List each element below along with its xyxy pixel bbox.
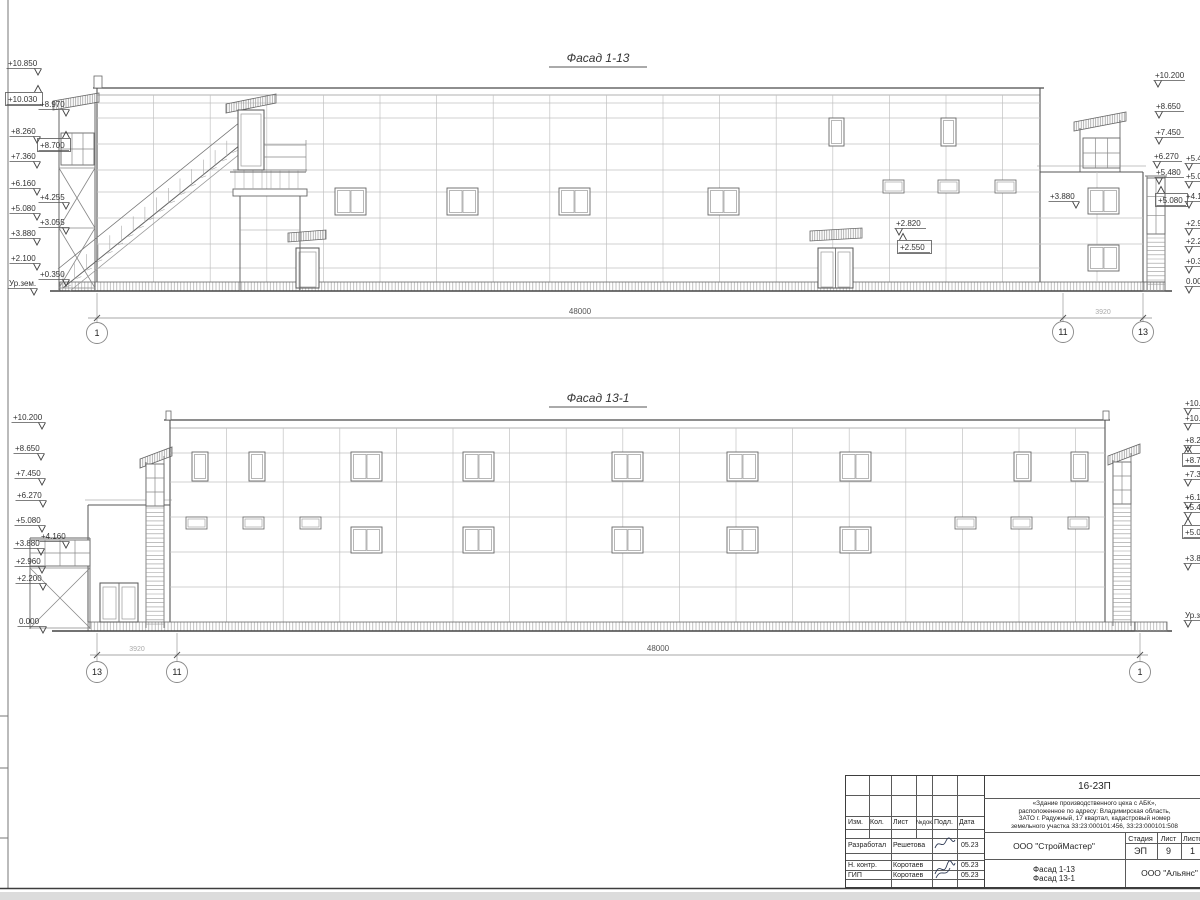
- elevation-mark-label: +8.700: [1185, 456, 1200, 465]
- elevation-mark-label: +5.480: [1185, 503, 1200, 512]
- row-role: Разработал: [848, 842, 886, 849]
- roof-post: [1103, 411, 1109, 420]
- window: [727, 527, 758, 553]
- axis-number: 13: [92, 667, 102, 677]
- axis-number: 11: [1058, 327, 1067, 337]
- listov-label: Листов: [1183, 834, 1200, 843]
- elevation-mark-label: +2.100: [11, 254, 36, 263]
- roof-post: [166, 411, 171, 420]
- signature: [933, 836, 956, 852]
- project-line: земельного участка 33:23:000101:456, 33:…: [984, 823, 1200, 831]
- window: [708, 188, 739, 215]
- project-line: ЗАТО г. Радужный, 17 квартал, кадастровы…: [984, 815, 1200, 823]
- drawing-canvas: Фасад 1-1348000392011113+10.850+10.030+8…: [0, 0, 1200, 900]
- window: [559, 188, 590, 215]
- sheet-title-2: Фасад 13-1: [984, 874, 1125, 883]
- elevation-mark-label: +8.700: [40, 141, 65, 150]
- col-list-label: Лист: [893, 819, 908, 826]
- elevation-mark-label: +7.450: [16, 469, 41, 478]
- elevation-mark-label: +0.350: [1186, 257, 1200, 266]
- elevation-mark-label: +6.270: [17, 491, 42, 500]
- elevation-mark-arrow: [1073, 202, 1080, 209]
- stage-value: ЭП: [1125, 846, 1157, 856]
- elevation-mark-label: +3.880: [15, 539, 40, 548]
- plinth: [88, 622, 1135, 631]
- elevation-mark-arrow: [900, 234, 907, 241]
- window: [840, 527, 871, 553]
- row-name: Решетова: [893, 842, 925, 849]
- elevation-mark-arrow: [1186, 287, 1193, 294]
- axis-number: 13: [1138, 327, 1148, 337]
- elevation-mark-label: +2.200: [17, 574, 42, 583]
- col-izm-label: Изм.: [848, 819, 863, 826]
- elevation-mark-label: 0.000: [19, 617, 40, 626]
- elevation-mark-label: +3.055: [40, 218, 65, 227]
- window: [463, 452, 494, 481]
- elevation-mark-label: +3.880: [11, 229, 36, 238]
- elevation-mark-arrow: [35, 69, 42, 76]
- elevation-mark-arrow: [63, 203, 70, 210]
- window: [351, 527, 382, 553]
- canopy: [810, 228, 862, 241]
- elevation-mark-label: +5.080: [1185, 528, 1200, 537]
- elevation-mark-arrow: [1155, 81, 1162, 88]
- drawing-sheet: { "titles": { "top": "Фасад 1-13", "bott…: [0, 0, 1200, 900]
- row-name: Коротаев: [893, 872, 923, 879]
- elevation-mark-arrow: [1186, 202, 1193, 209]
- facade-top-title: Фасад 1-13: [567, 51, 630, 65]
- elevation-mark-arrow: [35, 86, 42, 93]
- facade-1-13-drawing: Фасад 1-1348000392011113+10.850+10.030+8…: [6, 51, 1200, 344]
- window: [1088, 245, 1119, 271]
- elevation-mark-arrow: [39, 567, 46, 574]
- elevation-mark-arrow: [1185, 564, 1192, 571]
- dimension-label: 48000: [569, 307, 592, 316]
- elevation-mark-label: +10.850: [1185, 399, 1200, 408]
- elevation-mark-arrow: [34, 239, 41, 246]
- doc-number: 16-23П: [984, 781, 1200, 792]
- elevation-mark-label: +3.880: [1050, 192, 1075, 201]
- designer-org: ООО "СтройМастер": [984, 841, 1125, 851]
- elevation-mark-label: +5.480: [1156, 168, 1181, 177]
- window: [447, 188, 478, 215]
- facade-bottom-title: Фасад 13-1: [567, 391, 630, 405]
- elevation-mark-label: +4.255: [40, 193, 65, 202]
- window: [612, 452, 643, 481]
- listov-value: 1: [1190, 846, 1195, 856]
- elevation-mark-arrow: [1186, 182, 1193, 189]
- dimension-label: 48000: [647, 644, 670, 653]
- elevation-mark-label: +6.270: [1154, 152, 1179, 161]
- row-date: 05.23: [961, 842, 979, 849]
- plinth: [1135, 622, 1167, 631]
- project-description: «Здание производственного цеха с АБК», р…: [984, 800, 1200, 830]
- elevation-mark-label: +10.200: [1155, 71, 1185, 80]
- window: [612, 527, 643, 553]
- window: [335, 188, 366, 215]
- elevation-mark-arrow: [40, 584, 47, 591]
- elevation-mark-label: +10.850: [8, 59, 38, 68]
- elevation-mark-arrow: [38, 454, 45, 461]
- row-role: ГИП: [848, 872, 862, 879]
- elevation-mark-label: +2.820: [896, 219, 921, 228]
- sheet-title-1: Фасад 1-13: [984, 865, 1125, 874]
- elevation-mark-arrow: [1186, 247, 1193, 254]
- elevation-mark-arrow: [40, 627, 47, 634]
- col-data-label: Дата: [959, 819, 975, 826]
- elevation-mark-label: Ур.зем.: [1185, 611, 1200, 620]
- axis-number: 1: [94, 328, 99, 338]
- elevation-mark-label: +5.480: [1186, 154, 1200, 163]
- elevation-mark-label: +2.550: [900, 243, 925, 252]
- list-label: Лист: [1157, 834, 1181, 843]
- elevation-mark-arrow: [1156, 112, 1163, 119]
- elevation-mark-label: +8.650: [1156, 102, 1181, 111]
- elevation-mark-arrow: [1185, 621, 1192, 628]
- elevation-mark-label: +10.030: [8, 95, 38, 104]
- elevation-mark-arrow: [1185, 424, 1192, 431]
- dimension-label: 3920: [129, 646, 145, 653]
- sheet-frame: [0, 0, 1200, 900]
- elevation-mark-label: +10.030: [1185, 414, 1200, 423]
- window: [727, 452, 758, 481]
- canopy: [1074, 112, 1126, 131]
- elevation-mark-label: +4.160: [41, 532, 66, 541]
- elevation-mark-arrow: [39, 479, 46, 486]
- elevation-mark-arrow: [63, 110, 70, 117]
- elevation-mark-arrow: [1186, 267, 1193, 274]
- elevation-mark-label: +7.360: [1185, 470, 1200, 479]
- elevation-mark-label: +6.160: [1185, 493, 1200, 502]
- door: [296, 248, 319, 288]
- elevation-mark-arrow: [63, 228, 70, 235]
- signature: [933, 858, 956, 880]
- elevation-mark-label: +5.080: [1186, 172, 1200, 181]
- elevation-mark-arrow: [1185, 480, 1192, 487]
- col-ndok-label: №док.: [916, 820, 934, 826]
- list-value: 9: [1157, 846, 1181, 856]
- window: [840, 452, 871, 481]
- elevation-mark-arrow: [39, 423, 46, 430]
- elevation-mark-label: +8.260: [1185, 436, 1200, 445]
- elevation-mark-arrow: [40, 501, 47, 508]
- col-podl-label: Подл.: [934, 819, 953, 826]
- elevation-mark-label: +2.960: [16, 557, 41, 566]
- window: [351, 452, 382, 481]
- canopy: [288, 230, 326, 242]
- elevation-mark-label: +10.200: [13, 413, 43, 422]
- elevation-mark-label: +7.360: [11, 152, 36, 161]
- elevation-mark-label: +6.160: [11, 179, 36, 188]
- elevation-mark-arrow: [31, 289, 38, 296]
- plinth: [1143, 282, 1165, 291]
- row-date: 05.23: [961, 872, 979, 879]
- project-line: «Здание производственного цеха с АБК»,: [984, 800, 1200, 808]
- stage-label: Стадия: [1125, 834, 1157, 843]
- title-block: Изм. Кол. Лист №док. Подл. Дата Разработ…: [845, 775, 1200, 888]
- elevation-mark-label: +5.080: [1158, 196, 1183, 205]
- elevation-mark-label: +5.080: [16, 516, 41, 525]
- elevation-mark-label: +3.880: [1185, 554, 1200, 563]
- elevation-mark-label: +8.650: [15, 444, 40, 453]
- axis-number: 11: [172, 667, 181, 677]
- elevation-mark-label: +8.970: [40, 100, 65, 109]
- col-kol-label: Кол.: [870, 819, 884, 826]
- elevation-mark-arrow: [1186, 164, 1193, 171]
- window: [1088, 188, 1119, 214]
- elevation-mark-label: +4.160: [1186, 192, 1200, 201]
- row-role: Н. контр.: [848, 862, 877, 869]
- elevation-mark-arrow: [896, 229, 903, 236]
- door: [238, 110, 264, 170]
- elevation-mark-label: +8.260: [11, 127, 36, 136]
- elevation-mark-arrow: [1156, 138, 1163, 145]
- elevation-mark-arrow: [1186, 229, 1193, 236]
- contractor-org: ООО "Альянс": [1125, 868, 1200, 878]
- sheet-edge-shadow: [0, 892, 1200, 900]
- elevation-mark-label: +2.960: [1186, 219, 1200, 228]
- elevation-mark-label: +5.080: [11, 204, 36, 213]
- plinth: [60, 282, 1165, 291]
- elevation-mark-arrow: [34, 162, 41, 169]
- axis-number: 1: [1137, 667, 1142, 677]
- facade-13-1-drawing: Фасад 13-139204800013111+10.200+8.650+7.…: [12, 391, 1200, 683]
- row-date: 05.23: [961, 862, 979, 869]
- row-name: Коротаев: [893, 862, 923, 869]
- elevation-mark-label: +0.350: [40, 270, 65, 279]
- stair-platform: [233, 189, 307, 196]
- elevation-mark-label: +2.200: [1186, 237, 1200, 246]
- elevation-mark-label: Ур.зем.: [9, 279, 36, 288]
- window: [463, 527, 494, 553]
- elevation-mark-label: +7.450: [1156, 128, 1181, 137]
- elevation-mark-label: 0.000: [1186, 277, 1200, 286]
- dimension-label: 3920: [1095, 309, 1111, 316]
- roof-post: [94, 76, 102, 88]
